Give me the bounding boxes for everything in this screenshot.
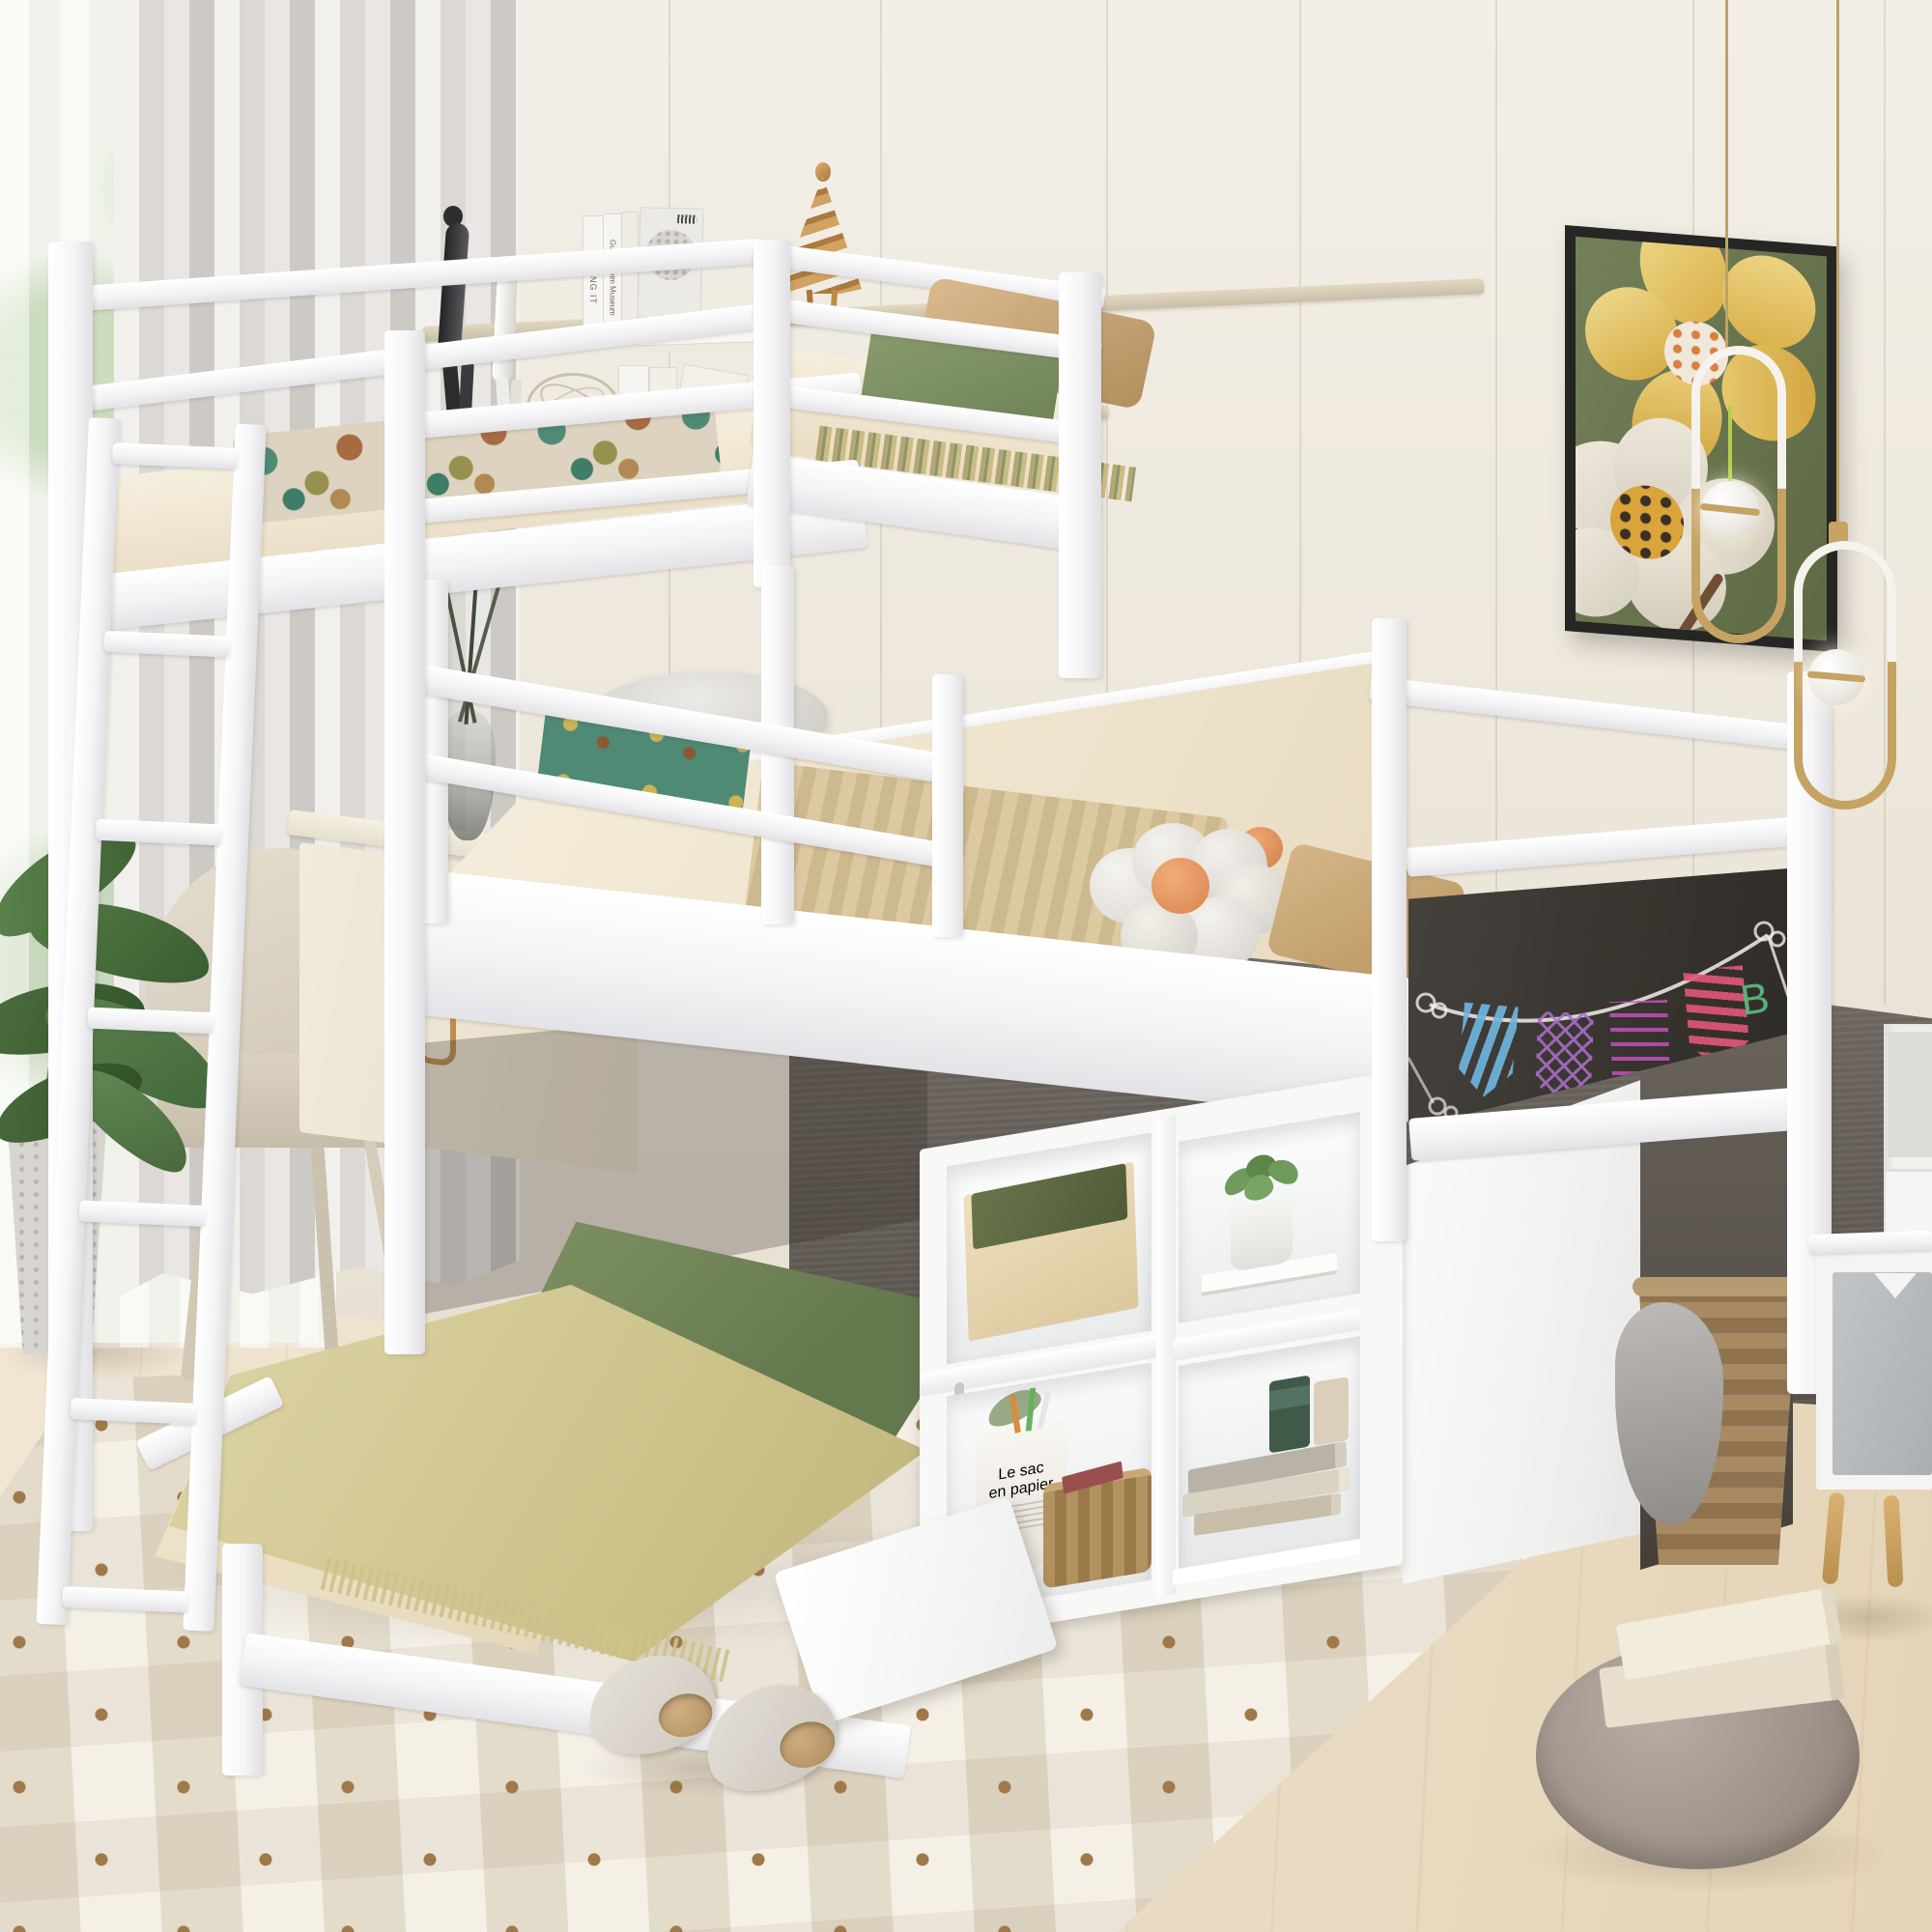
wall-seam (1884, 0, 1886, 1005)
figurine-torso (492, 274, 518, 384)
bed-post-right-top (1059, 272, 1101, 678)
middle-bed-guard-end-post (932, 674, 963, 937)
ladder-rung (96, 819, 222, 846)
flower-pillow-center-orange (1151, 858, 1209, 914)
bed-post-center (753, 240, 790, 587)
ladder-rung (112, 442, 239, 469)
ladder-rung (103, 631, 230, 658)
hutch-opening (1888, 1032, 1932, 1157)
wall-seam (1495, 0, 1497, 927)
bed-post-front-left (384, 330, 425, 1354)
headboard-post-left (1372, 618, 1406, 1241)
basket-rim (1633, 1277, 1804, 1296)
ladder-rung (87, 1008, 213, 1035)
black-figurine (428, 206, 486, 438)
candle-beige (1314, 1377, 1349, 1446)
nightstand-gray-door (1833, 1272, 1932, 1475)
ladder-rung (71, 1398, 197, 1425)
small-wicker-basket (1043, 1466, 1151, 1588)
pendant-cable (1725, 0, 1728, 350)
pendant-cable (1836, 0, 1839, 529)
succulent-pot (1231, 1196, 1293, 1272)
album-barcode (677, 214, 696, 224)
candle-label (1269, 1384, 1310, 1410)
candle-green (1269, 1375, 1310, 1453)
ladder-rung (79, 1200, 206, 1227)
nightstand-hutch (1884, 1024, 1932, 1261)
ladder-rung (62, 1586, 188, 1613)
room-scene: MAKING IT Guggenheim Museum MAKING IT IT (0, 0, 1932, 1932)
